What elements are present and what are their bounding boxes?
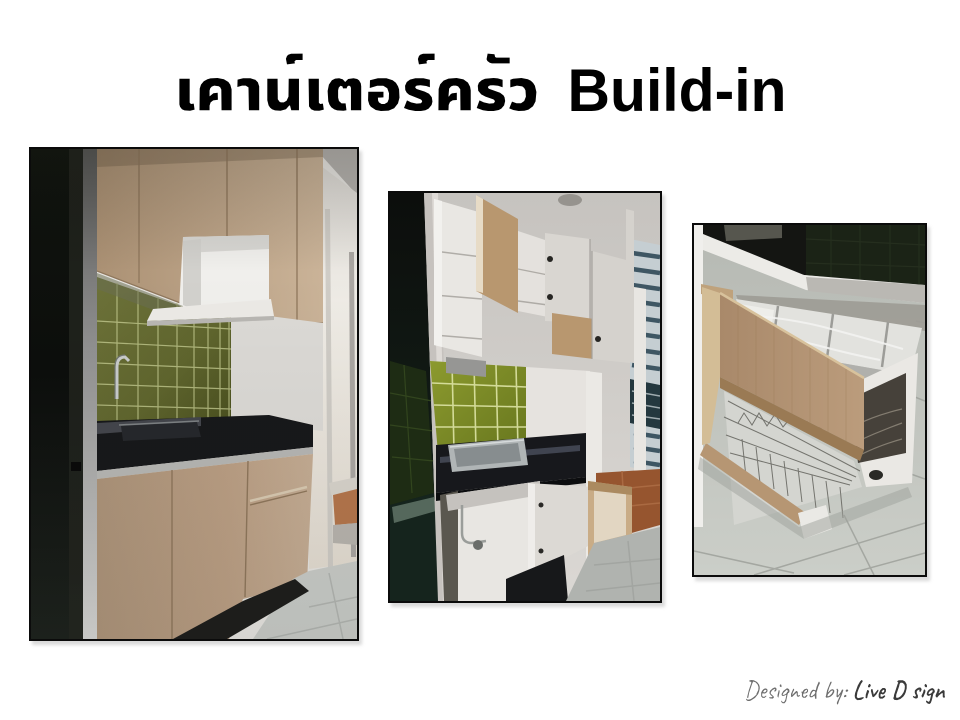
svg-text:Build-in: Build-in — [568, 57, 787, 124]
